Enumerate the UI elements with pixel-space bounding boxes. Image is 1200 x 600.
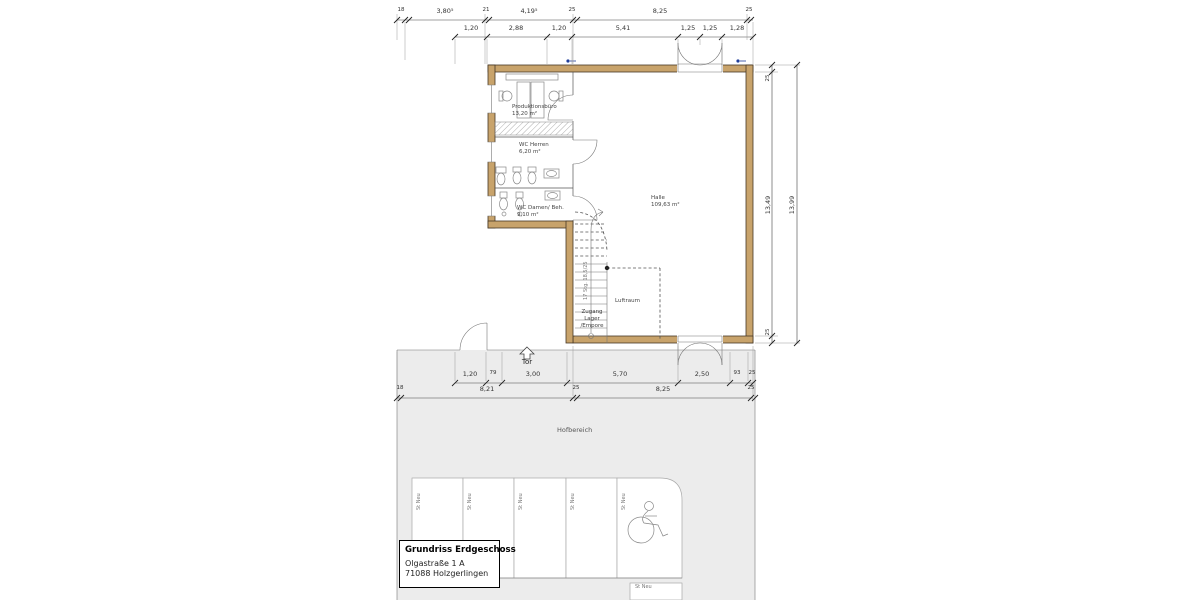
dim-top2-128: 1,28 [730, 24, 744, 32]
dim-right-1399: 13,99 [788, 196, 796, 215]
dim-top1-18: 18 [398, 7, 405, 13]
dim-bot1-120: 1,20 [463, 370, 477, 378]
dim-bot1-93: 93 [734, 370, 741, 376]
floor-plan-canvas: 18 3,80⁵ 21 4,19⁵ 25 8,25 25 1,20 2,88 1… [0, 0, 1200, 600]
zugang-line: /Empore [578, 323, 606, 330]
room-label-halle: Halle 109,63 m² [651, 195, 680, 209]
room-label-wc-damen: WC Damen/ Beh. 9,10 m² [517, 205, 564, 219]
room-area: 13,20 m² [512, 111, 557, 118]
dim-bot2-821: 8,21 [480, 385, 494, 393]
dim-bot2-25b: 25 [748, 385, 755, 391]
dim-top2-120b: 1,20 [552, 24, 566, 32]
gate-door [460, 323, 487, 350]
entrance-door-top [677, 43, 723, 73]
dim-bot2-25a: 25 [573, 385, 580, 391]
dim-bot2-825: 8,25 [656, 385, 670, 393]
floor-plan-drawing [0, 0, 1200, 600]
tor-label: Tor [522, 358, 532, 366]
room-name: WC Damen/ Beh. [517, 205, 564, 212]
room-name: WC Herren [519, 142, 549, 149]
room-area: 6,20 m² [519, 149, 549, 156]
dim-bot1-25: 25 [749, 370, 756, 376]
dim-right-25top: 25 [765, 75, 771, 82]
dim-top2-120a: 1,20 [464, 24, 478, 32]
dim-top1-21: 21 [483, 7, 490, 13]
zugang-line: Lager [578, 316, 606, 323]
roof-drain-symbols [566, 59, 746, 62]
plan-title: Grundriss Erdgeschoss [405, 545, 494, 555]
dim-top2-288: 2,88 [509, 24, 523, 32]
dim-bot2-18: 18 [397, 385, 404, 391]
room-label-zugang: Zugang Lager /Empore [578, 309, 606, 330]
dim-top1-25b: 25 [746, 7, 753, 13]
room-area: 9,10 m² [517, 212, 564, 219]
dim-bot1-250: 2,50 [695, 370, 709, 378]
stall-label: St Neu [621, 493, 627, 510]
wc-herren-fixtures [496, 167, 559, 185]
dim-bot1-79: 79 [490, 370, 497, 376]
stall-label: St Neu [635, 584, 652, 590]
room-label-produktionsbuero: Produktionsbüro 13,20 m² [512, 104, 557, 118]
glass-partition [495, 122, 573, 135]
dim-top2-125a: 1,25 [681, 24, 695, 32]
dim-bot1-300: 3,00 [526, 370, 540, 378]
dim-top1-380: 3,80⁵ [436, 7, 453, 15]
title-block: Grundriss Erdgeschoss Olgastraße 1 A 710… [399, 540, 500, 588]
room-area: 109,63 m² [651, 202, 680, 209]
windows [488, 85, 496, 216]
room-name: Produktionsbüro [512, 104, 557, 111]
dim-top1-25a: 25 [569, 7, 576, 13]
stall-label: St Neu [416, 493, 422, 510]
room-name: Halle [651, 195, 680, 202]
hofbereich-label: Hofbereich [557, 426, 592, 434]
zugang-line: Zugang [578, 309, 606, 316]
stair-note: 17 Stg. 18,5/25 [583, 261, 589, 300]
plan-address-city: 71088 Holzgerlingen [405, 569, 494, 579]
plan-address-street: Olgastraße 1 A [405, 559, 494, 569]
stall-label: St Neu [518, 493, 524, 510]
dim-top1-419: 4,19⁵ [520, 7, 537, 15]
room-label-wc-herren: WC Herren 6,20 m² [519, 142, 549, 156]
room-label-luftraum: Luftraum [615, 298, 640, 305]
dim-top1-825: 8,25 [653, 7, 667, 15]
dim-right-1349: 13,49 [764, 196, 772, 215]
dim-top2-125b: 1,25 [703, 24, 717, 32]
dim-top2-541: 5,41 [616, 24, 630, 32]
dim-right-25bot: 25 [765, 329, 771, 336]
dim-bot1-570: 5,70 [613, 370, 627, 378]
stall-label: St Neu [467, 493, 473, 510]
stall-label: St Neu [570, 493, 576, 510]
